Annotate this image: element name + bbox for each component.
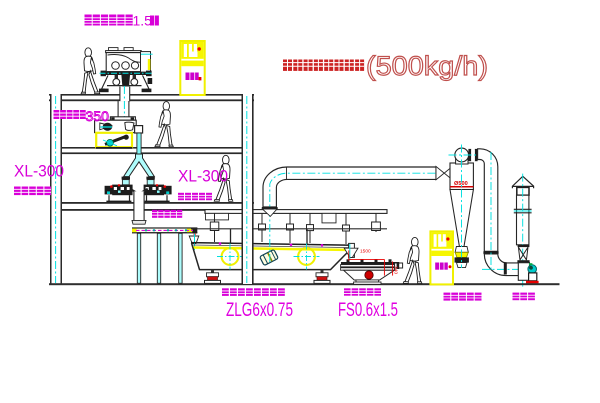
svg-text:1.5: 1.5 [133, 13, 153, 29]
svg-text:1500: 1500 [360, 249, 371, 255]
svg-text:XL-300: XL-300 [14, 162, 64, 181]
svg-text:340: 340 [393, 266, 399, 274]
svg-text:FS0.6x1.5: FS0.6x1.5 [338, 300, 398, 321]
svg-text:Ø500: Ø500 [454, 181, 468, 187]
svg-text:XL-300: XL-300 [178, 167, 228, 186]
svg-text:(500kg/h): (500kg/h) [366, 51, 488, 81]
svg-text:ZLG6x0.75: ZLG6x0.75 [226, 300, 293, 321]
svg-text:350: 350 [86, 108, 110, 124]
